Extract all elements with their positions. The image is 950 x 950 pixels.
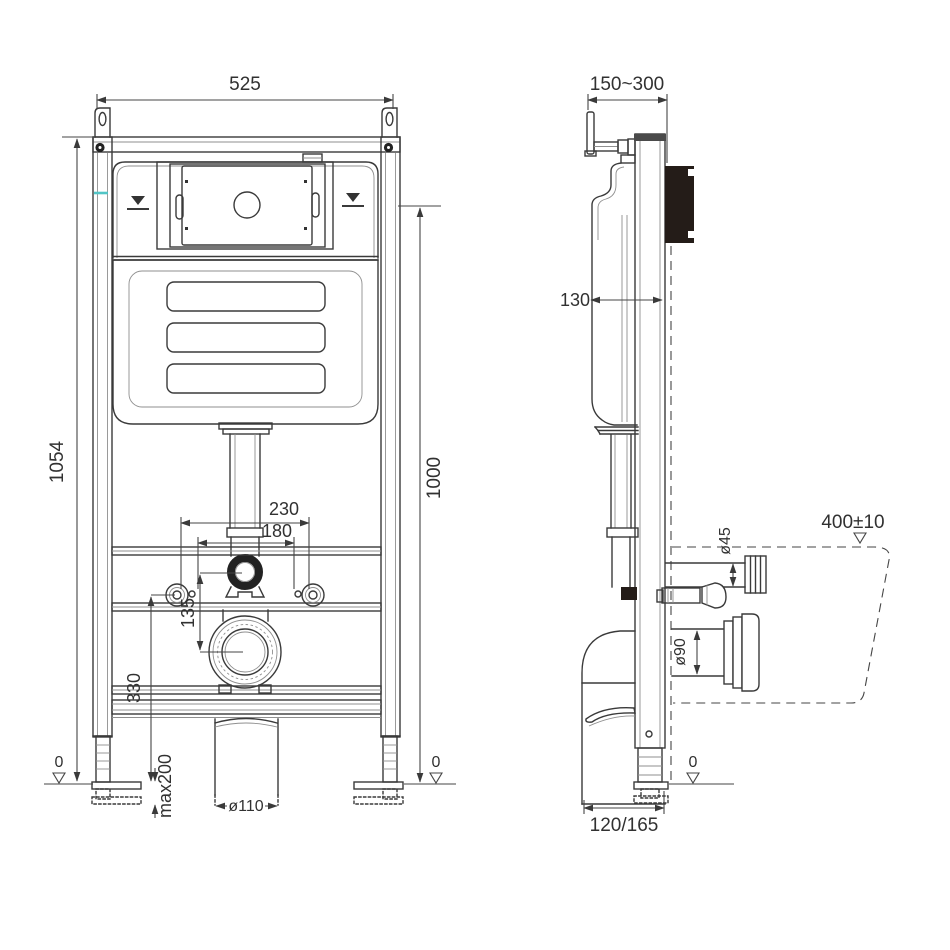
cistern-side-profile bbox=[592, 155, 638, 434]
side-view bbox=[582, 112, 889, 804]
dim-outlet-height: 330 bbox=[124, 673, 144, 703]
cistern-head bbox=[113, 154, 378, 260]
dim-outlet-depth: 120/165 bbox=[590, 815, 659, 836]
adjustable-feet bbox=[92, 736, 403, 804]
dim-flush-dia: ø45 bbox=[717, 527, 734, 555]
flush-pipe-front bbox=[219, 423, 272, 597]
dim-flush-outlet-offset: 135 bbox=[178, 598, 198, 628]
dim-cistern-depth: 130 bbox=[560, 290, 590, 310]
dim-bolt-span-outer: 230 bbox=[269, 499, 299, 519]
dim-frame-height: 1054 bbox=[47, 440, 68, 483]
access-panel bbox=[157, 154, 333, 249]
toilet-frame-installation-drawing: 525 1054 1000 230 180 135 330 max200 bbox=[0, 0, 950, 950]
wall-bracket bbox=[585, 112, 635, 156]
dim-depth-range: 150~300 bbox=[590, 74, 665, 95]
flush-pipe-side bbox=[607, 435, 638, 600]
dim-frame-width: 525 bbox=[229, 74, 261, 95]
drain-pipe bbox=[215, 719, 278, 806]
drain-bend-side bbox=[582, 631, 665, 804]
dim-foot-adjust: max200 bbox=[155, 754, 175, 818]
dim-rim-height: 400±10 bbox=[821, 512, 884, 533]
toilet-bowl-outline bbox=[672, 547, 889, 703]
frame-structure bbox=[93, 137, 400, 737]
floor-zero-left: 0 bbox=[55, 754, 64, 771]
technical-drawing-page: 525 1054 1000 230 180 135 330 max200 bbox=[0, 0, 950, 950]
dim-outlet-dia: ø90 bbox=[672, 638, 689, 666]
flush-button-circle bbox=[234, 192, 260, 218]
cistern-tank bbox=[113, 260, 378, 424]
foot-side bbox=[634, 748, 668, 803]
dim-ref-height: 1000 bbox=[424, 457, 445, 499]
dim-drain-dia: ø110 bbox=[228, 798, 263, 815]
dim-bolt-span-inner: 180 bbox=[262, 521, 292, 541]
frame-rail-side bbox=[634, 134, 666, 748]
floor-zero-right: 0 bbox=[432, 754, 441, 771]
panel-latch-right bbox=[312, 193, 319, 217]
access-shaft-box bbox=[665, 166, 694, 243]
wall-mount-tabs bbox=[95, 108, 397, 137]
water-level-symbols bbox=[127, 193, 364, 209]
floor-zero-side: 0 bbox=[689, 754, 698, 771]
